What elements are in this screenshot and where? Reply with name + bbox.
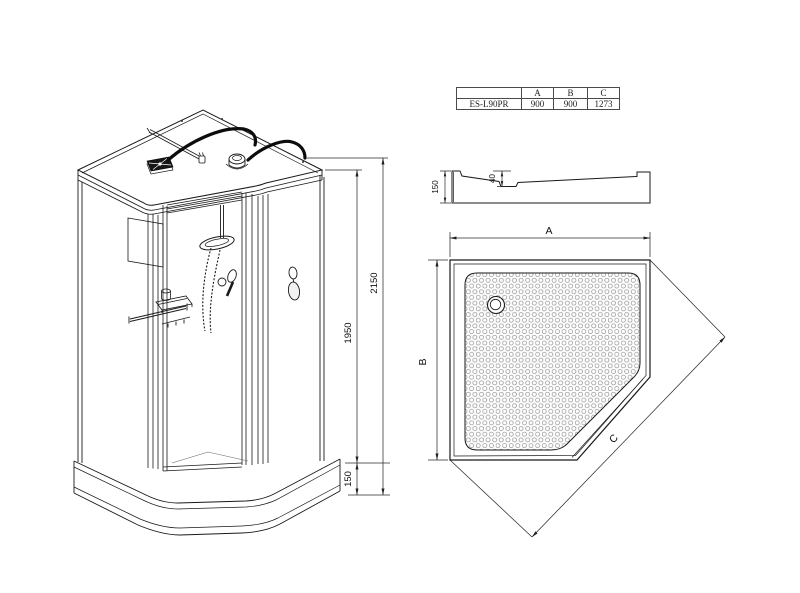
tray-side-profile-view: 150 40 [415, 145, 670, 225]
spec-header-row: A B C [457, 88, 620, 99]
spec-col-b: B [554, 88, 588, 99]
roof-cables [147, 128, 305, 163]
dim-label-c: C [607, 432, 621, 446]
dim-label-a: A [545, 225, 552, 237]
roof-knob [226, 154, 248, 169]
mixer-valve [287, 267, 300, 301]
iso-dimensions: 2150 1950 150 [307, 158, 390, 495]
isometric-cabin-view: 2150 1950 150 [50, 15, 400, 580]
dim-label-b: B [417, 358, 429, 365]
tray-floor-edges [172, 452, 248, 463]
spec-value-c: 1273 [588, 99, 620, 110]
shower-pipe [221, 205, 224, 238]
drain-icon [488, 297, 505, 314]
spec-model-cell: ES-L90PR [457, 99, 522, 110]
base-tray [74, 459, 340, 535]
dim-basin-depth: 40 [488, 174, 497, 183]
cabin-walls [78, 175, 324, 471]
hook-rail [162, 317, 190, 328]
hand-shower [226, 269, 238, 296]
shower-hose [203, 248, 220, 333]
spec-table: A B C ES-L90PR 900 900 1273 [456, 87, 620, 110]
dim-total-height: 2150 [369, 272, 380, 293]
spec-value-row: ES-L90PR 900 900 1273 [457, 99, 620, 110]
spec-col-a: A [522, 88, 554, 99]
dim-tray-height: 150 [343, 471, 354, 487]
tray-plan-outline [450, 260, 650, 460]
cabin-interior [128, 205, 301, 463]
spec-value-b: 900 [554, 99, 588, 110]
spec-corner-cell [457, 88, 522, 99]
tray-profile-outline [452, 171, 650, 203]
tray-plan-view: A B C [410, 215, 760, 560]
technical-drawing-page: 2150 1950 150 150 40 [0, 0, 800, 593]
hose-holder [218, 278, 226, 286]
dim-profile-height: 150 [431, 180, 440, 194]
cable-connector [199, 153, 205, 164]
spec-col-c: C [588, 88, 620, 99]
spec-value-a: 900 [522, 99, 554, 110]
dim-body-height: 1950 [343, 322, 354, 343]
side-dimensions: 150 40 [431, 171, 511, 203]
top-shower-head [199, 233, 236, 252]
